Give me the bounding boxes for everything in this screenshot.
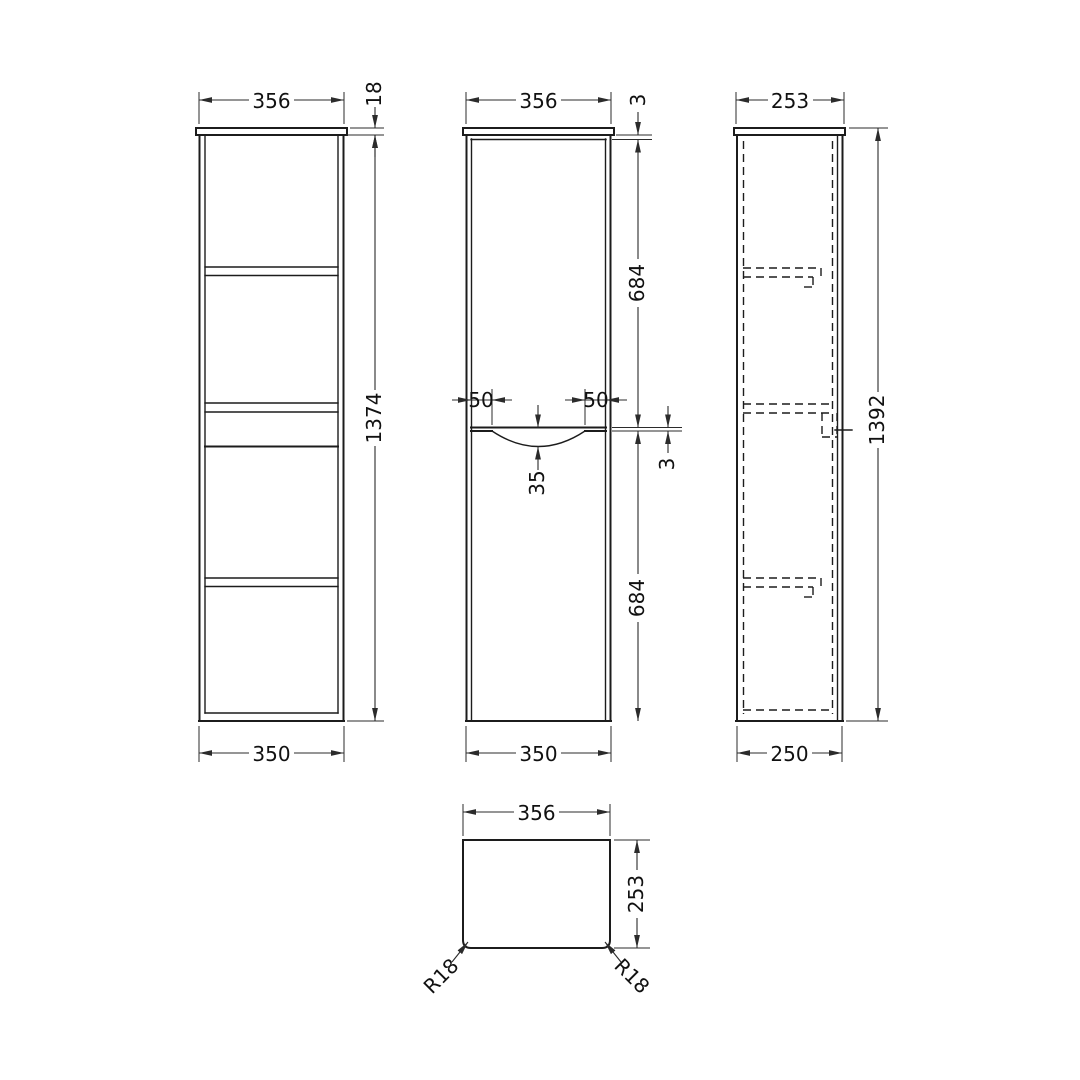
technical-drawing-sheet: 356 18 1374 350 xyxy=(0,0,1080,1080)
shelf-middle-upper xyxy=(205,403,338,412)
dim-label-plan-depth: 253 xyxy=(624,875,648,913)
dim-door-gap: 3 xyxy=(612,406,682,470)
dim-label-handle-inset-right: 50 xyxy=(583,388,608,412)
dim-label-top-gap: 3 xyxy=(626,94,650,107)
dim-plan-width: 356 xyxy=(463,801,610,836)
dim-label-handle-inset-left: 50 xyxy=(468,388,493,412)
dim-width-top: 356 xyxy=(466,89,611,124)
dim-depth-top: 253 xyxy=(736,89,844,124)
dim-top-thickness: 18 xyxy=(347,81,386,157)
dim-label-top-thickness: 18 xyxy=(362,81,386,106)
dim-radius-front-left: R18 xyxy=(419,942,468,998)
top-panel xyxy=(734,128,845,135)
dim-overall-height: 1392 xyxy=(846,128,889,721)
dim-radius-front-right: R18 xyxy=(605,942,654,998)
dim-label-width-bottom: 350 xyxy=(519,742,557,766)
dim-label-carcass-height: 1374 xyxy=(362,393,386,444)
dim-label-radius-front-right: R18 xyxy=(610,954,655,999)
dim-upper-door-height: 684 xyxy=(612,140,682,428)
dim-handle-recess-depth: 35 xyxy=(525,405,549,496)
hidden-panel-lines xyxy=(743,141,833,714)
dim-width-bottom: 350 xyxy=(466,726,611,766)
dim-label-width-bottom: 350 xyxy=(252,742,290,766)
side-panels xyxy=(200,135,344,721)
side-elevation-view: 253 1392 250 xyxy=(734,89,889,766)
dim-carcass-height: 1374 xyxy=(347,135,386,721)
dim-label-handle-recess-depth: 35 xyxy=(525,470,549,495)
dim-label-upper-door-height: 684 xyxy=(625,264,649,302)
cabinet-dimension-drawing: 356 18 1374 350 xyxy=(0,0,1080,1080)
dim-label-width-top: 356 xyxy=(519,89,557,113)
dim-handle-inset-right: 50 xyxy=(565,388,627,425)
dim-depth-bottom: 250 xyxy=(737,726,842,766)
dim-label-lower-door-height: 684 xyxy=(625,579,649,617)
dim-width-top: 356 xyxy=(199,89,344,124)
bottom-panel xyxy=(199,713,344,721)
door-meeting-edges xyxy=(471,428,606,432)
shelf-bottom xyxy=(205,578,338,587)
dim-plan-depth: 253 xyxy=(614,840,650,948)
dim-width-bottom: 350 xyxy=(199,726,344,766)
dim-lower-door-height: 684 xyxy=(625,431,649,721)
dim-top-gap: 3 xyxy=(612,94,652,140)
dim-label-width-top: 356 xyxy=(252,89,290,113)
hidden-shelf-top xyxy=(743,268,821,287)
dim-label-overall-height: 1392 xyxy=(865,395,889,446)
top-panel xyxy=(196,128,347,135)
handle-recess-curve xyxy=(492,431,585,447)
dim-label-plan-width: 356 xyxy=(517,801,555,825)
hidden-shelf-bottom xyxy=(743,578,821,597)
front-elevation-open-view: 356 18 1374 350 xyxy=(196,81,386,766)
dim-label-depth-bottom: 250 xyxy=(770,742,808,766)
shelf-top xyxy=(205,267,338,276)
dim-label-radius-front-left: R18 xyxy=(419,954,464,999)
plan-view: 356 253 R18 R18 xyxy=(419,801,655,998)
top-panel xyxy=(463,128,614,135)
dim-handle-inset-left: 50 xyxy=(452,388,512,425)
front-elevation-doors-view: 356 3 684 3 xyxy=(452,89,682,766)
plan-outline xyxy=(463,840,610,948)
body-outline xyxy=(736,135,843,721)
dim-label-depth-top: 253 xyxy=(771,89,809,113)
dim-label-door-gap: 3 xyxy=(655,458,679,471)
hidden-shelf-middle xyxy=(743,404,833,413)
